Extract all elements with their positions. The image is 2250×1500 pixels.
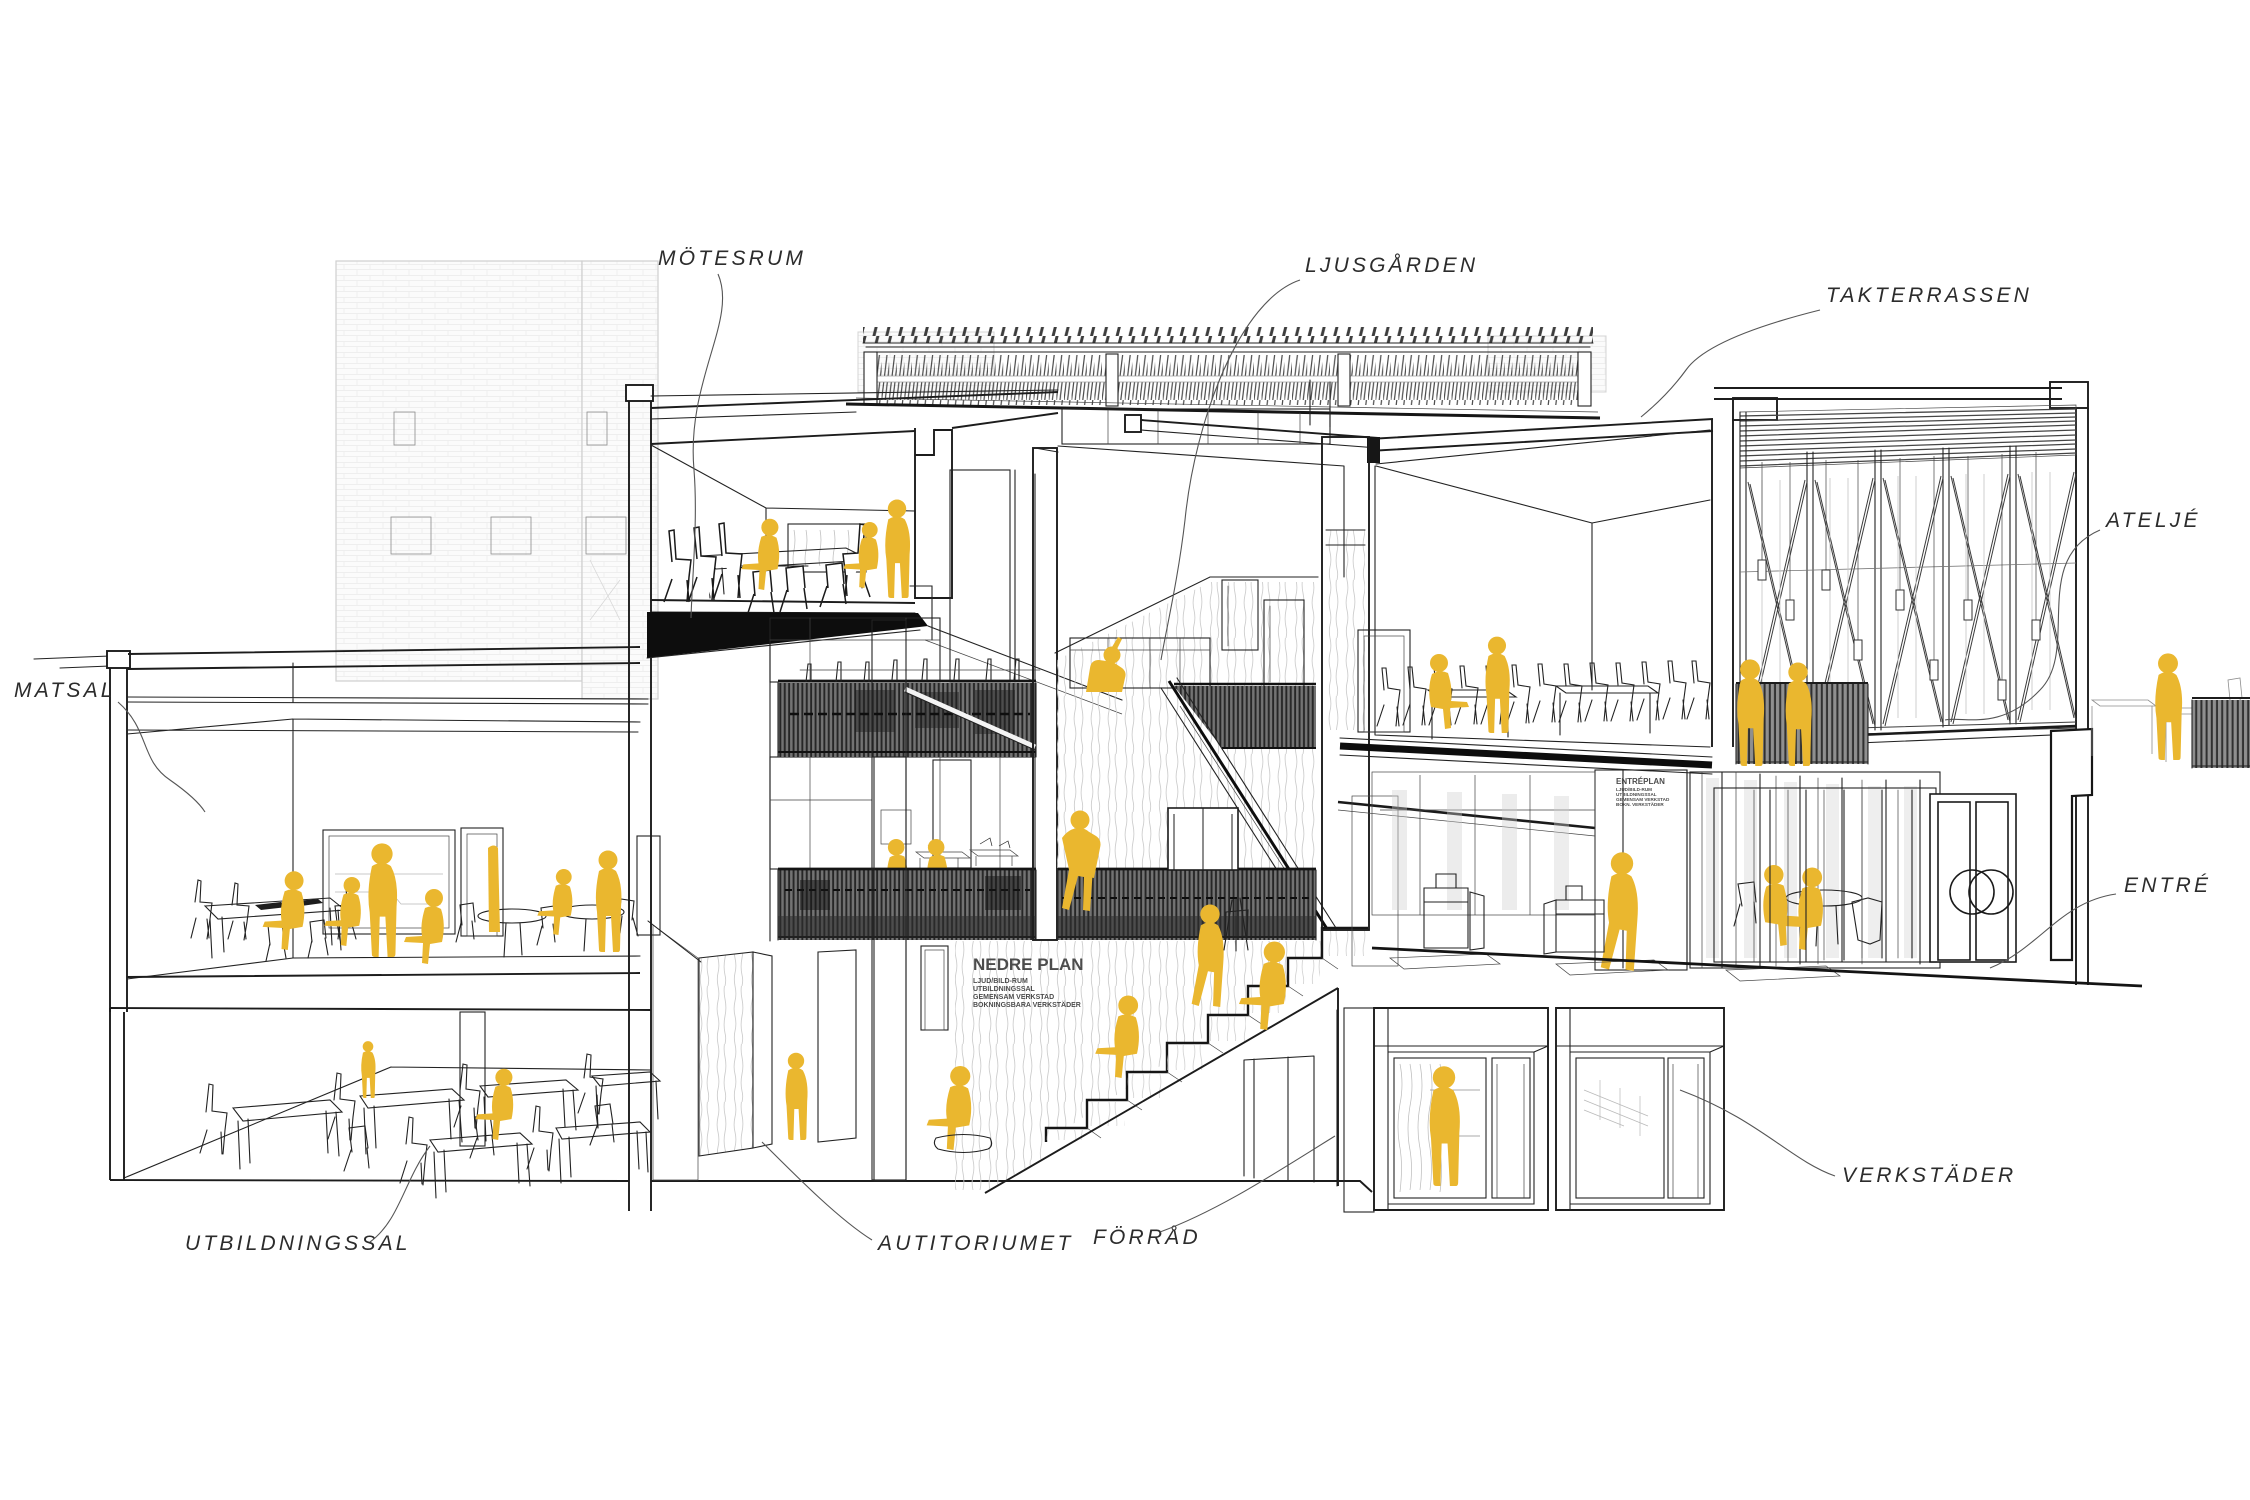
svg-text:AUTITORIUMET: AUTITORIUMET — [876, 1232, 1074, 1255]
svg-text:FÖRRÅD: FÖRRÅD — [1093, 1226, 1201, 1249]
svg-text:LJUD/BILD-RUM: LJUD/BILD-RUM — [973, 978, 1028, 985]
svg-text:UTBILDNINGSSAL: UTBILDNINGSSAL — [185, 1232, 411, 1255]
svg-text:TAKTERRASSEN: TAKTERRASSEN — [1826, 284, 2032, 307]
svg-text:NEDRE PLAN: NEDRE PLAN — [973, 955, 1084, 974]
svg-text:MÖTESRUM: MÖTESRUM — [658, 247, 806, 270]
svg-text:ATELJÉ: ATELJÉ — [2104, 509, 2201, 532]
svg-text:BOKN. VERKSTÄDER: BOKN. VERKSTÄDER — [1616, 801, 1664, 807]
svg-text:ENTRÉPLAN: ENTRÉPLAN — [1616, 777, 1665, 786]
svg-text:LJUSGÅRDEN: LJUSGÅRDEN — [1305, 254, 1478, 277]
svg-text:BOKNINGSBARA VERKSTÄDER: BOKNINGSBARA VERKSTÄDER — [973, 1001, 1081, 1009]
svg-text:VERKSTÄDER: VERKSTÄDER — [1842, 1164, 2016, 1187]
svg-text:MATSAL: MATSAL — [14, 679, 116, 702]
svg-text:UTBILDNINGSSAL: UTBILDNINGSSAL — [973, 986, 1036, 993]
svg-text:ENTRÉ: ENTRÉ — [2124, 874, 2211, 897]
svg-text:GEMENSAM VERKSTAD: GEMENSAM VERKSTAD — [973, 994, 1054, 1001]
